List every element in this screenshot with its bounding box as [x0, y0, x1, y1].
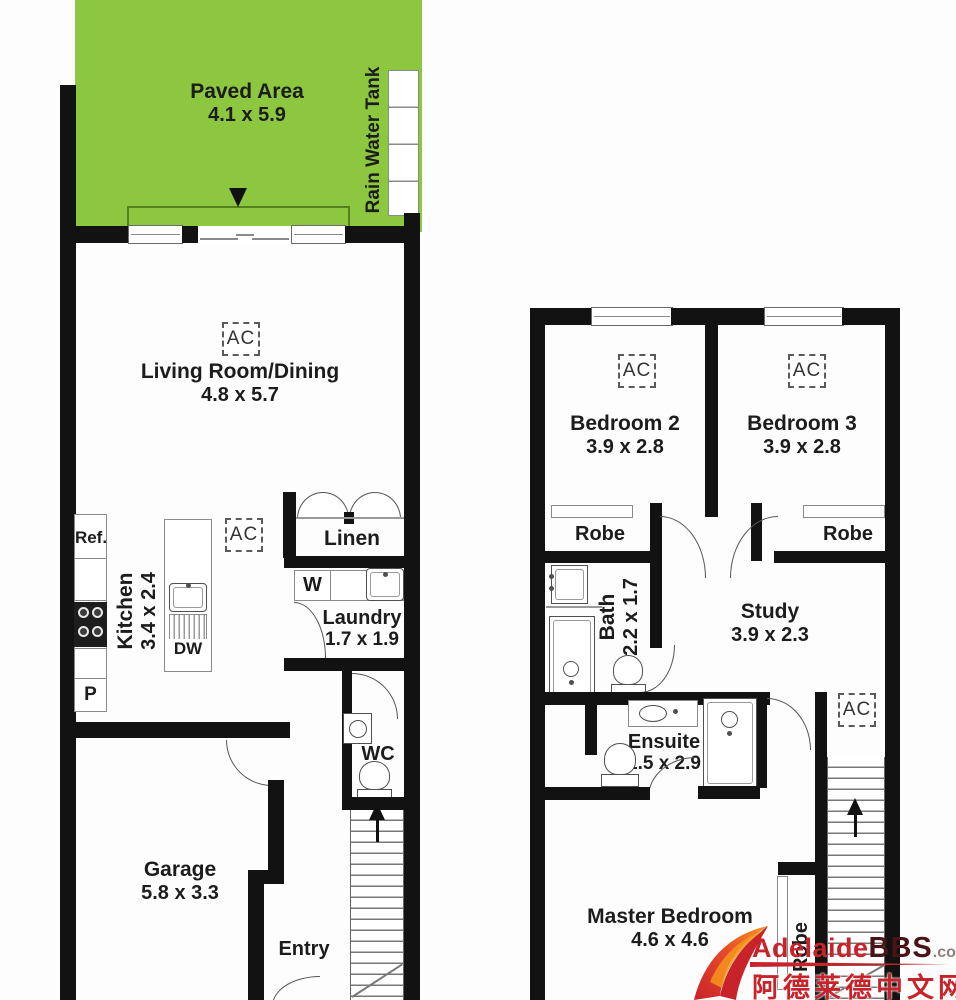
ac-unit-icon: AC [222, 322, 260, 356]
room-label-study: Study 3.9 x 2.3 [695, 600, 845, 646]
wall-segment [284, 556, 420, 568]
robe-label: Robe [806, 523, 890, 545]
door-arc-icon [660, 516, 706, 578]
sink-icon [343, 713, 372, 744]
study-name: Study [695, 600, 845, 624]
room-label-laundry: Laundry 1.7 x 1.9 [316, 607, 408, 651]
watermark-com: .com [933, 944, 956, 961]
watermark: AdelaideBBS.com 阿德莱德中文网 [688, 918, 956, 1000]
robe-label: Robe [558, 523, 642, 545]
room-label-entry: Entry [268, 938, 340, 960]
room-label-bedroom3: Bedroom 3 3.9 x 2.8 [722, 412, 882, 458]
door-arc-icon [767, 698, 811, 750]
living-dims: 4.8 x 5.7 [115, 384, 365, 406]
closet-front-line [296, 517, 404, 519]
rwt-name: Rain Water Tank [363, 60, 384, 220]
ac-label: AC [623, 360, 651, 382]
watermark-bbs: BBS [869, 932, 933, 964]
ac-unit-icon: AC [838, 693, 876, 727]
stove-icon [74, 602, 107, 647]
sink-icon [366, 568, 404, 601]
wall-segment [774, 551, 900, 563]
window-icon [764, 307, 844, 326]
robe-rail-icon [803, 505, 885, 518]
ac-label: AC [230, 524, 258, 546]
wall-segment [345, 226, 420, 243]
ac-label: AC [843, 699, 871, 721]
living-name: Living Room/Dining [115, 360, 365, 384]
pantry-label: P [74, 684, 107, 705]
bath-dims: 2.2 x 1.7 [620, 569, 642, 665]
counter-divider [74, 648, 107, 649]
window-icon [291, 225, 346, 244]
wall-segment [885, 308, 900, 1000]
sink-icon [169, 583, 207, 612]
room-label-kitchen: Kitchen 3.4 x 2.4 [114, 561, 160, 661]
kitchen-name: Kitchen [114, 561, 138, 661]
laundry-dims: 1.7 x 1.9 [316, 629, 408, 650]
door-arc-icon [730, 516, 778, 578]
wall-segment [268, 780, 284, 876]
wall-segment [671, 308, 766, 325]
bedroom2-name: Bedroom 2 [545, 412, 705, 436]
ac-unit-icon: AC [618, 354, 656, 388]
wall-segment [530, 551, 662, 563]
wall-segment [705, 325, 718, 517]
wall-segment [284, 658, 420, 671]
dishwasher-label: DW [166, 639, 210, 658]
dishwasher-icon [169, 614, 207, 640]
room-label-garage: Garage 5.8 x 3.3 [105, 858, 255, 904]
door-arc-icon [226, 740, 272, 786]
washer-icon: W [294, 570, 331, 601]
garage-dims: 5.8 x 3.3 [105, 882, 255, 904]
counter-divider [74, 600, 107, 601]
wall-segment [778, 862, 818, 875]
robe-rail-icon [551, 505, 633, 518]
sink-icon [551, 565, 588, 604]
wall-segment [60, 722, 290, 738]
bifold-door-icon [297, 492, 323, 519]
watermark-brand: AdelaideBBS.com [752, 932, 956, 965]
counter-divider [74, 558, 107, 559]
counter-divider [74, 678, 107, 679]
wall-segment [530, 308, 545, 1000]
washer-label: W [303, 574, 322, 597]
bifold-door-icon [375, 492, 401, 519]
rain-water-tank-icon [388, 70, 419, 216]
room-label-bath: Bath 2.2 x 1.7 [596, 569, 642, 665]
wall-segment [283, 492, 296, 558]
bedroom2-dims: 3.9 x 2.8 [545, 436, 705, 458]
fridge-label: Ref. [72, 528, 110, 547]
garage-name: Garage [105, 858, 255, 882]
paved-dims: 4.1 x 5.9 [147, 104, 347, 126]
watermark-chinese: 阿德莱德中文网 [752, 966, 956, 1000]
ac-label: AC [227, 328, 255, 350]
wall-segment [530, 787, 650, 800]
bench-line [546, 606, 602, 608]
window-icon [128, 225, 183, 244]
study-dims: 3.9 x 2.3 [695, 624, 845, 646]
toilet-icon [604, 743, 636, 775]
wall-segment [60, 226, 130, 243]
wall-segment [585, 705, 597, 755]
shower-icon [549, 616, 595, 698]
ac-unit-icon: AC [788, 354, 826, 388]
stairs-arrow-stem [376, 818, 379, 842]
room-label-rain-water-tank: Rain Water Tank [363, 60, 385, 220]
vanity-icon [628, 700, 698, 727]
room-label-paved: Paved Area 4.1 x 5.9 [147, 80, 347, 126]
toilet-icon [359, 761, 390, 790]
toilet-cistern-icon [601, 774, 639, 787]
room-label-bedroom2: Bedroom 2 3.9 x 2.8 [545, 412, 705, 458]
door-arc-icon [640, 645, 675, 693]
door-arc-icon [272, 976, 320, 1000]
ac-label: AC [793, 360, 821, 382]
wall-segment [698, 786, 760, 799]
entry-arrow-icon [229, 188, 247, 207]
paved-name: Paved Area [147, 80, 347, 104]
bedroom3-name: Bedroom 3 [722, 412, 882, 436]
watermark-adelaide: Adelaide [752, 933, 869, 963]
floorplan: Paved Area 4.1 x 5.9 Rain Water Tank AC … [0, 0, 956, 1000]
room-label-linen: Linen [300, 527, 404, 551]
sliding-door-icon [198, 226, 291, 243]
kitchen-dims: 3.4 x 2.4 [138, 561, 160, 661]
window-icon [591, 307, 673, 326]
wall-segment [182, 226, 198, 243]
ac-unit-icon: AC [225, 518, 263, 552]
stairs-arrow-stem [854, 813, 857, 837]
laundry-name: Laundry [316, 607, 408, 629]
bath-name: Bath [596, 569, 620, 665]
room-label-living: Living Room/Dining 4.8 x 5.7 [115, 360, 365, 406]
bedroom3-dims: 3.9 x 2.8 [722, 436, 882, 458]
